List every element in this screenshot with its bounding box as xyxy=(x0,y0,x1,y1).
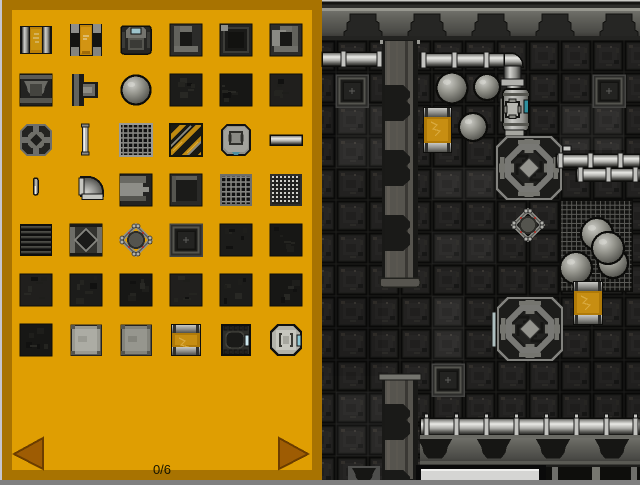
svg-text:0/6: 0/6 xyxy=(153,462,171,477)
